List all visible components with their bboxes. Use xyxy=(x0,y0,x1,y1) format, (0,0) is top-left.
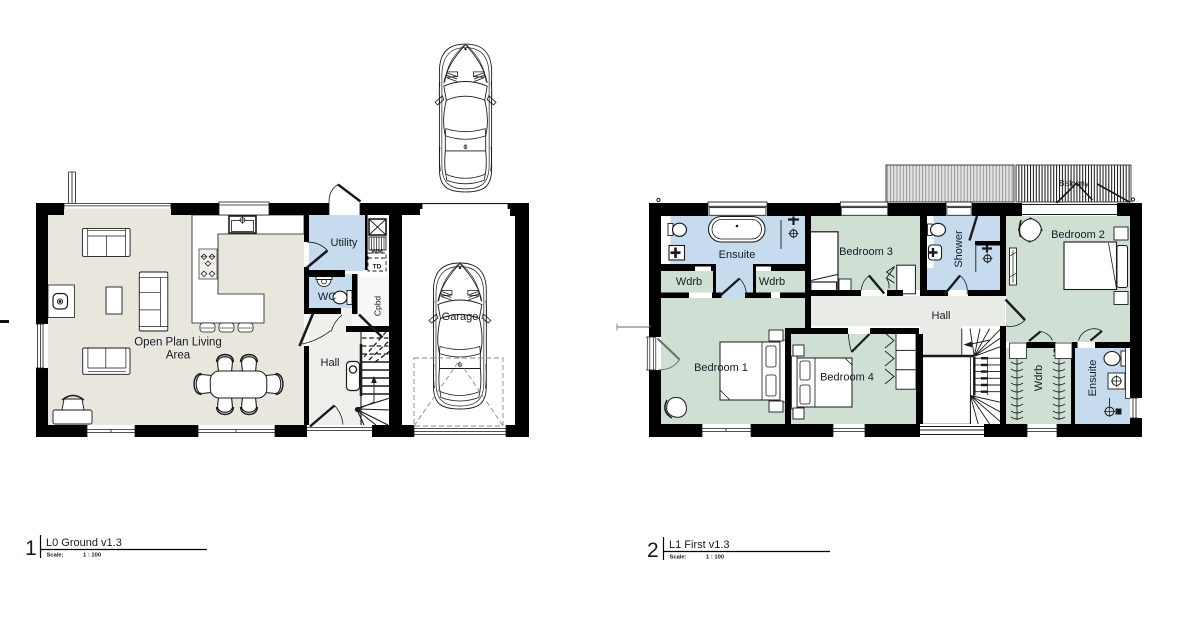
svg-text:Bedroom 1: Bedroom 1 xyxy=(694,362,748,374)
svg-text:Shower: Shower xyxy=(953,230,965,268)
svg-text:1 : 100: 1 : 100 xyxy=(706,555,724,561)
svg-text:Balcony: Balcony xyxy=(1059,178,1090,188)
svg-text:1 : 100: 1 : 100 xyxy=(83,553,101,559)
svg-text:Ensuite: Ensuite xyxy=(1087,360,1099,397)
svg-text:1: 1 xyxy=(25,537,37,560)
svg-text:2: 2 xyxy=(647,539,659,562)
svg-text:WC: WC xyxy=(318,291,336,303)
svg-text:L0 Ground v1.3: L0 Ground v1.3 xyxy=(46,537,122,549)
svg-text:Utility: Utility xyxy=(331,237,358,249)
svg-text:Cpbd: Cpbd xyxy=(373,296,383,317)
svg-text:Hall: Hall xyxy=(321,357,340,369)
svg-text:Wdrb: Wdrb xyxy=(676,276,702,288)
svg-text:Wdrb: Wdrb xyxy=(1033,365,1045,391)
svg-text:Bedroom 4: Bedroom 4 xyxy=(820,372,874,384)
svg-text:Area: Area xyxy=(166,350,191,362)
svg-text:Bedroom 2: Bedroom 2 xyxy=(1051,229,1105,241)
svg-text:L1 First v1.3: L1 First v1.3 xyxy=(669,539,730,551)
svg-text:TD: TD xyxy=(373,264,382,271)
svg-text:Scale:: Scale: xyxy=(670,555,687,561)
svg-text:Ensuite: Ensuite xyxy=(719,249,756,261)
svg-text:Hall: Hall xyxy=(932,310,951,322)
svg-text:Garage: Garage xyxy=(442,311,479,323)
svg-text:Open Plan Living: Open Plan Living xyxy=(134,337,222,349)
svg-text:Scale:: Scale: xyxy=(47,553,64,559)
svg-text:Wdrb: Wdrb xyxy=(759,276,785,288)
svg-text:WM: WM xyxy=(371,249,383,256)
svg-text:Bedroom 3: Bedroom 3 xyxy=(839,246,893,258)
